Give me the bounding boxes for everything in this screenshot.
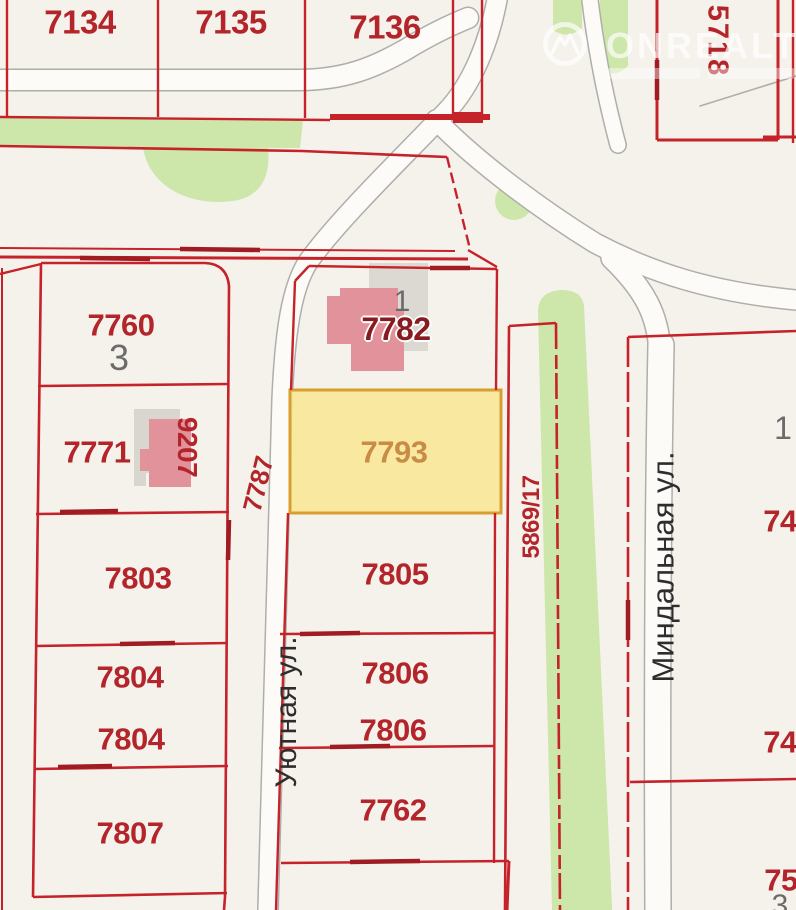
parcel-label-7760: 7760 — [88, 310, 155, 341]
parcel-label-7804a: 7804 — [97, 662, 164, 693]
parcel-label-7807: 7807 — [97, 818, 164, 849]
parcel-label-5718: 5718 — [703, 5, 732, 78]
parcel-label-7805: 7805 — [362, 559, 429, 590]
parcel-label-7771: 7771 — [64, 437, 131, 468]
parcel-label-7762: 7762 — [360, 795, 427, 826]
parcel-label-7806b: 7806 — [360, 715, 427, 746]
house-number-3-right: 3 — [772, 891, 789, 910]
map-canvas[interactable]: 7134 7135 7136 5718 7760 3 7771 9207 778… — [0, 0, 796, 910]
parcel-label-7136: 7136 — [349, 11, 420, 44]
house-number-3: 3 — [109, 340, 129, 376]
parcel-label-7803: 7803 — [105, 563, 172, 594]
parcel-label-5869-17: 5869/17 — [520, 475, 544, 558]
parcel-label-7135: 7135 — [195, 6, 266, 39]
parcel-label-7134: 7134 — [44, 6, 115, 39]
parcel-label-7806a: 7806 — [362, 658, 429, 689]
parcel-label-74-lower: 74 — [763, 727, 796, 758]
parcel-label-74-upper: 74 — [763, 506, 796, 537]
parcel-label-7793-selected: 7793 — [361, 437, 428, 468]
parcel-label-9207: 9207 — [173, 417, 201, 477]
street-label-uyutnaya: Уютная ул. — [272, 636, 302, 787]
house-number-1: 1 — [394, 287, 411, 317]
house-number-1-right: 1 — [774, 412, 792, 444]
parcel-label-7804b: 7804 — [98, 724, 165, 755]
street-label-mindalnaya: Миндальная ул. — [648, 451, 679, 682]
